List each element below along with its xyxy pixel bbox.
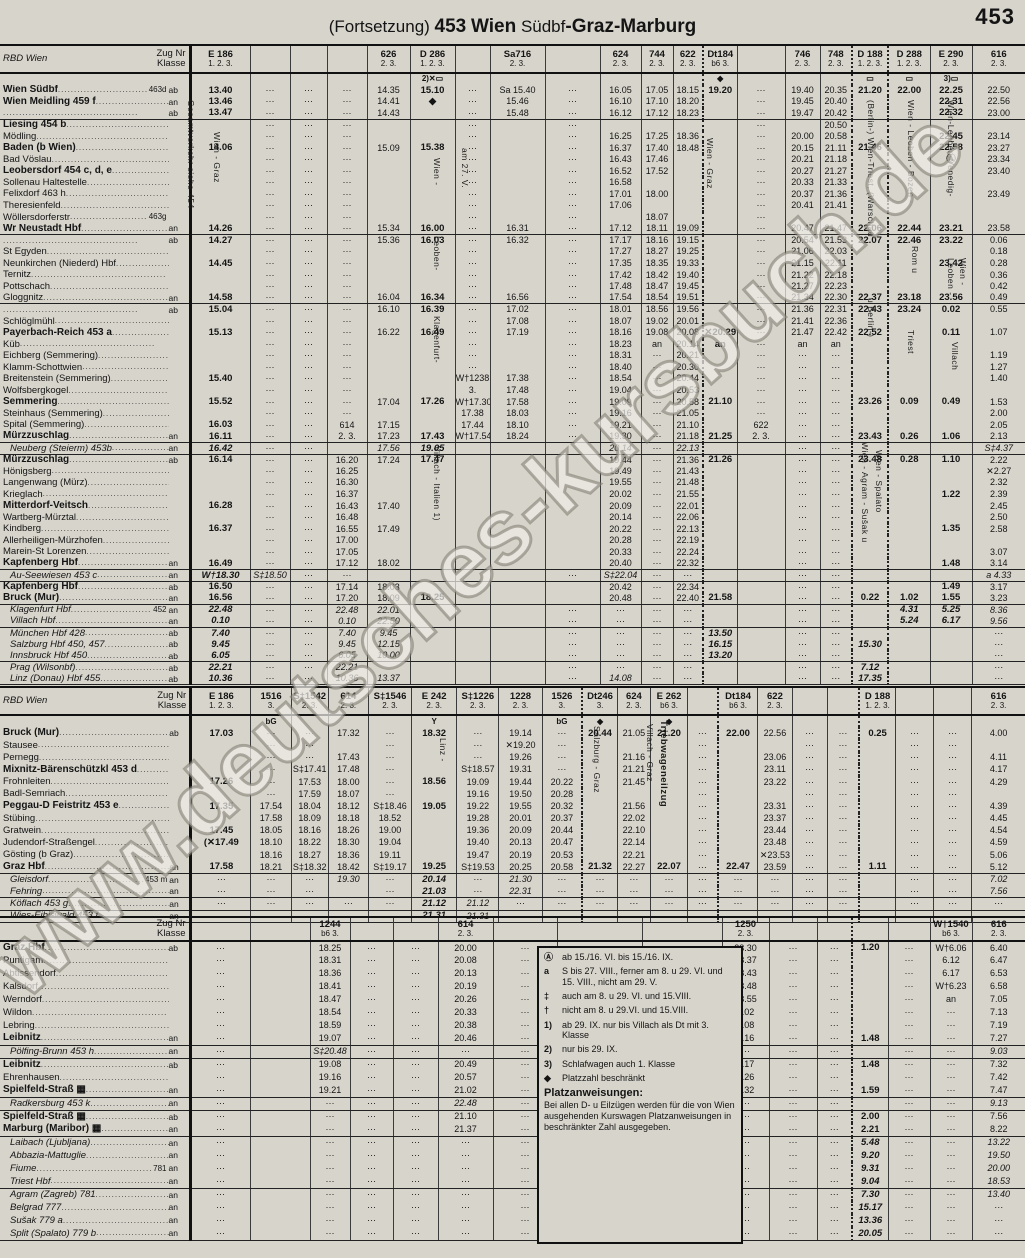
time-cell: ··· — [792, 837, 827, 849]
time-cell: ··· — [545, 431, 600, 443]
time-cell: ··· — [542, 739, 582, 751]
train-marker-icon: ▭ — [888, 73, 930, 85]
time-cell: ··· — [250, 212, 290, 224]
time-cell: ··· — [888, 1084, 930, 1097]
time-cell — [410, 627, 455, 639]
time-cell: 18.07 — [328, 788, 368, 800]
time-cell: ··· — [393, 1188, 438, 1201]
time-cell — [703, 108, 737, 120]
time-cell: ··· — [290, 258, 327, 270]
time-cell — [852, 581, 888, 593]
time-cell — [852, 954, 888, 967]
time-cell: ··· — [769, 980, 817, 993]
time-cell: 16.58 — [600, 177, 641, 189]
time-cell: ··· — [455, 350, 490, 362]
time-cell: ··· — [972, 639, 1025, 651]
footnote: ◆Platzzahl beschränkt — [544, 1073, 736, 1083]
time-cell: 2.32 — [972, 477, 1025, 489]
time-cell — [250, 1097, 310, 1110]
time-cell: ··· — [250, 258, 290, 270]
time-cell: 21.27 — [785, 281, 820, 293]
time-cell: ··· — [438, 1149, 493, 1162]
time-cell: 14.08 — [600, 673, 641, 685]
time-cell: ··· — [895, 739, 933, 751]
route-label: Wien - Leoben - Bozen - — [906, 100, 916, 262]
time-cell: S‡20.48 — [310, 1045, 350, 1058]
time-cell: ··· — [888, 1032, 930, 1045]
time-cell — [930, 546, 972, 558]
time-cell — [490, 246, 545, 258]
time-cell — [703, 362, 737, 374]
time-cell: 20.40 — [820, 96, 852, 108]
time-cell: 1.07 — [972, 327, 1025, 339]
time-cell — [367, 165, 410, 177]
time-cell — [820, 212, 852, 224]
time-cell: ··· — [617, 873, 650, 885]
time-cell: ··· — [368, 776, 411, 788]
time-cell: ··· — [930, 1123, 972, 1136]
time-cell — [930, 662, 972, 674]
time-cell: ··· — [820, 546, 852, 558]
marker-cell — [490, 73, 545, 85]
station-cell: Badl-Semriach — [0, 788, 191, 800]
time-cell: ··· — [827, 727, 859, 739]
station-row: Kapfenberg Hbfan16.49······17.1218.0220.… — [0, 558, 1025, 570]
time-cell: ··· — [250, 339, 290, 351]
station-cell: Leobersdorf 454 c, d, e — [0, 165, 190, 177]
time-cell: ··· — [190, 941, 250, 954]
time-cell: 13.40 — [972, 1188, 1025, 1201]
marker-cell — [641, 73, 673, 85]
time-cell: ··· — [888, 1045, 930, 1058]
time-cell: 2.00 — [852, 1110, 888, 1123]
train-marker-icon: ◆ — [650, 715, 687, 727]
time-cell: ··· — [327, 142, 367, 154]
time-cell: ··· — [499, 898, 542, 910]
train-column-empty — [190, 917, 250, 941]
time-cell: ··· — [688, 849, 718, 861]
time-cell: 13.22 — [972, 1136, 1025, 1149]
time-cell: ··· — [393, 1201, 438, 1214]
train-column-Dt184: Dt184b6 3. — [703, 45, 737, 73]
time-cell — [703, 235, 737, 247]
time-cell: ··· — [290, 327, 327, 339]
time-cell: ··· — [290, 673, 327, 685]
time-cell: ··· — [688, 788, 718, 800]
time-cell: 20.33 — [600, 546, 641, 558]
time-cell — [650, 764, 687, 776]
time-cell: ··· — [545, 627, 600, 639]
time-cell: ··· — [250, 223, 290, 235]
time-cell: ··· — [290, 662, 327, 674]
time-cell — [412, 788, 457, 800]
time-cell: 0.25 — [859, 727, 895, 739]
time-cell: 17.05 — [327, 546, 367, 558]
station-row: Fehringan············21.03···22.31······… — [0, 886, 1025, 898]
time-cell — [703, 489, 737, 501]
time-cell: ··· — [820, 581, 852, 593]
time-cell: ··· — [737, 200, 785, 212]
time-cell: ··· — [310, 1097, 350, 1110]
time-cell: S‡17.41 — [291, 764, 328, 776]
time-cell: 0.49 — [930, 396, 972, 408]
time-cell: ··· — [393, 1136, 438, 1149]
time-cell — [930, 466, 972, 478]
station-cell: Wildon — [0, 1006, 190, 1019]
time-cell: 19.08 — [641, 327, 673, 339]
time-cell: ··· — [250, 188, 290, 200]
route-label: Leoben - — [946, 258, 956, 316]
time-cell: ··· — [769, 1149, 817, 1162]
time-cell: ··· — [542, 727, 582, 739]
timetable-section-2: RBD WienZug NrKlasseE 1861. 2. 3.15163.S… — [0, 686, 1025, 923]
time-cell: 19.33 — [673, 258, 703, 270]
time-cell: ··· — [737, 408, 785, 420]
time-cell: 20.25 — [499, 861, 542, 873]
time-cell: ··· — [792, 727, 827, 739]
time-cell: ··· — [785, 454, 820, 466]
time-cell — [972, 119, 1025, 131]
station-cell: Wien Meidling 459 fan — [0, 96, 190, 108]
time-cell: ··· — [545, 616, 600, 628]
time-cell: 20.44 — [673, 373, 703, 385]
time-cell — [367, 477, 410, 489]
train-column-Dt246: Dt2463. — [582, 687, 617, 715]
time-cell: ··· — [827, 813, 859, 825]
time-cell: 22.48 — [327, 604, 367, 616]
time-cell: ··· — [641, 662, 673, 674]
time-cell — [455, 650, 490, 662]
time-cell: ··· — [972, 650, 1025, 662]
time-cell: ··· — [820, 593, 852, 605]
time-cell: ··· — [888, 980, 930, 993]
time-cell: ··· — [934, 886, 972, 898]
time-cell: ··· — [250, 246, 290, 258]
time-cell: ··· — [888, 1058, 930, 1071]
time-cell: 21.55 — [673, 489, 703, 501]
time-cell: 20.13 — [438, 967, 493, 980]
time-cell: 22.21 — [327, 662, 367, 674]
time-cell — [367, 119, 410, 131]
header-rbd: RBD WienZug NrKlasse — [0, 687, 191, 715]
footnote: Ⓐab 15./16. VI. bis 15./16. IX. — [544, 952, 736, 962]
station-row: Graz Hbfab···18.25······20.00·········23… — [0, 941, 1025, 954]
time-cell: ··· — [688, 837, 718, 849]
time-cell — [852, 385, 888, 397]
time-cell — [490, 165, 545, 177]
station-row: Frohnleiten17.26···17.5318.00···18.5619.… — [0, 776, 1025, 788]
time-cell: 23.59 — [758, 861, 792, 873]
time-cell — [490, 362, 545, 374]
footnote-symbol: ◆ — [544, 1073, 562, 1083]
time-cell — [888, 662, 930, 674]
time-cell: ··· — [327, 292, 367, 304]
time-cell — [191, 813, 251, 825]
time-cell: ··· — [820, 489, 852, 501]
station-cell: Spital (Semmering) — [0, 419, 190, 431]
time-cell: 22.36 — [820, 315, 852, 327]
time-cell — [250, 1123, 310, 1136]
station-cell: Split (Spalato) 779 ban — [0, 1227, 190, 1240]
station-row: Fiume781an······························… — [0, 1162, 1025, 1175]
time-cell: 23.18 — [888, 292, 930, 304]
time-cell — [703, 281, 737, 293]
time-cell: 21.30 — [499, 873, 542, 885]
time-cell: ··· — [930, 1071, 972, 1084]
time-cell: 0.28 — [888, 454, 930, 466]
time-cell — [367, 570, 410, 582]
time-cell: 17.45 — [191, 825, 251, 837]
time-cell: ··· — [191, 898, 251, 910]
time-cell — [888, 477, 930, 489]
time-cell — [888, 581, 930, 593]
footnote-text: ab 29. IX. nur bis Villach als Dt mit 3.… — [562, 1020, 736, 1041]
time-cell: ··· — [393, 993, 438, 1006]
time-cell: 17.17 — [600, 235, 641, 247]
train-column-624: 6242. 3. — [600, 45, 641, 73]
time-cell: 21.27 — [820, 165, 852, 177]
time-cell: ··· — [290, 477, 327, 489]
time-cell — [412, 837, 457, 849]
time-cell: ··· — [934, 764, 972, 776]
time-cell: ··· — [190, 1188, 250, 1201]
time-cell: ··· — [250, 650, 290, 662]
station-cell: Spielfeld-Straß ▦ab — [0, 1110, 190, 1123]
time-cell — [888, 489, 930, 501]
time-cell: ··· — [250, 639, 290, 651]
time-cell: ··· — [250, 373, 290, 385]
time-cell: ··· — [737, 350, 785, 362]
footnote-text: nicht am 8. u 29.VI. und 15.VIII. — [562, 1005, 688, 1015]
time-cell: ··· — [895, 788, 933, 800]
time-cell: ··· — [327, 85, 367, 97]
time-cell: ··· — [250, 142, 290, 154]
time-cell: ··· — [641, 512, 673, 524]
time-cell: 19.21 — [600, 419, 641, 431]
time-cell: ··· — [769, 1136, 817, 1149]
time-cell — [673, 212, 703, 224]
time-cell: 6.17 — [930, 967, 972, 980]
time-cell — [367, 489, 410, 501]
station-cell: Steinhaus (Semmering) — [0, 408, 190, 420]
time-cell — [490, 593, 545, 605]
time-cell: 18.16 — [291, 825, 328, 837]
train-column-empty — [493, 917, 557, 941]
time-cell: ··· — [895, 873, 933, 885]
time-cell: 15.10 — [410, 85, 455, 97]
time-cell — [852, 604, 888, 616]
time-cell: ··· — [617, 898, 650, 910]
time-cell: ··· — [737, 339, 785, 351]
station-row: Köflach 453 gan···············21.1221.12… — [0, 898, 1025, 910]
time-cell: 13.50 — [703, 627, 737, 639]
time-cell: ··· — [934, 739, 972, 751]
time-cell — [703, 673, 737, 685]
time-cell: ··· — [641, 558, 673, 570]
time-cell: 17.20 — [327, 593, 367, 605]
time-cell: ··· — [817, 967, 852, 980]
station-cell: Abtissendorf — [0, 967, 190, 980]
time-cell — [785, 212, 820, 224]
time-cell: ··· — [673, 662, 703, 674]
time-cell — [250, 993, 310, 1006]
time-cell: 23.00 — [972, 108, 1025, 120]
time-cell — [490, 466, 545, 478]
time-cell: 16.48 — [327, 512, 367, 524]
time-cell — [412, 825, 457, 837]
time-cell — [455, 616, 490, 628]
time-cell: ··· — [393, 1097, 438, 1110]
time-cell: ··· — [545, 142, 600, 154]
time-cell: 2. 3. — [327, 431, 367, 443]
time-cell: ··· — [310, 1123, 350, 1136]
station-cell: Mürzzuschlagan — [0, 431, 190, 443]
time-cell: ··· — [820, 477, 852, 489]
time-cell: 18.03 — [490, 408, 545, 420]
time-cell: ··· — [769, 967, 817, 980]
time-cell: ··· — [310, 1227, 350, 1240]
station-cell: Liesing 454 b — [0, 119, 190, 131]
time-cell: ··· — [327, 154, 367, 166]
time-cell — [410, 558, 455, 570]
time-cell: ··· — [895, 764, 933, 776]
time-cell: ··· — [817, 1032, 852, 1045]
time-cell: 20.37 — [542, 813, 582, 825]
time-cell — [718, 739, 758, 751]
time-cell — [490, 673, 545, 685]
time-cell: ··· — [250, 616, 290, 628]
station-row: Peggau-D Feistritz 453 e17.3517.5418.041… — [0, 800, 1025, 812]
time-cell: ··· — [895, 776, 933, 788]
time-cell: 17.19 — [490, 327, 545, 339]
time-cell: ··· — [827, 800, 859, 812]
time-cell — [490, 570, 545, 582]
time-cell: ··· — [290, 546, 327, 558]
time-cell: 22.47 — [718, 861, 758, 873]
time-cell — [250, 1149, 310, 1162]
time-cell — [490, 258, 545, 270]
station-row: Judendorf-Straßengel(✕17.4918.1018.2218.… — [0, 837, 1025, 849]
time-cell: 17.23 — [367, 431, 410, 443]
time-cell: ··· — [291, 898, 328, 910]
time-cell: ··· — [350, 1149, 393, 1162]
station-row: Marburg (Maribor) ▦an············21.37··… — [0, 1123, 1025, 1136]
time-cell — [412, 813, 457, 825]
time-cell: ··· — [792, 752, 827, 764]
time-cell: ··· — [290, 616, 327, 628]
time-cell: 2.50 — [972, 512, 1025, 524]
train-column-614: 6142. 3. — [438, 917, 493, 941]
time-cell: 22.13 — [673, 443, 703, 455]
time-cell: 1.59 — [852, 1084, 888, 1097]
station-cell: St Egyden — [0, 246, 190, 258]
time-cell: ··· — [190, 980, 250, 993]
time-cell: ··· — [250, 604, 290, 616]
time-cell: ··· — [250, 119, 290, 131]
time-cell: ··· — [457, 739, 499, 751]
station-row: Klagenfurt Hbf452an22.48······22.4822.01… — [0, 604, 1025, 616]
station-row: Prag (Wilsonbf)ab22.21······22.21·······… — [0, 662, 1025, 674]
time-cell: ··· — [438, 1227, 493, 1240]
time-cell — [490, 477, 545, 489]
station-cell: Kapfenberg Hbfab — [0, 581, 190, 593]
time-cell: ··· — [291, 873, 328, 885]
time-cell: ··· — [291, 739, 328, 751]
time-cell: ··· — [393, 954, 438, 967]
time-cell: ··· — [737, 315, 785, 327]
time-cell: 4.59 — [972, 837, 1025, 849]
time-cell: (✕17.49 — [191, 837, 251, 849]
footnote: †nicht am 8. u 29.VI. und 15.VIII. — [544, 1005, 736, 1015]
time-cell: 19.02 — [641, 315, 673, 327]
time-cell: ··· — [455, 212, 490, 224]
time-cell: ··· — [641, 604, 673, 616]
station-cell: Leibnitzab — [0, 1058, 190, 1071]
station-cell: Gösting (b Graz) — [0, 849, 191, 861]
time-cell: ··· — [542, 764, 582, 776]
time-cell: 1.35 — [930, 523, 972, 535]
time-cell: ··· — [888, 967, 930, 980]
time-cell: ··· — [393, 1214, 438, 1227]
time-cell: ··· — [737, 281, 785, 293]
station-cell: Ehrenhausen — [0, 1071, 190, 1084]
time-cell: ··· — [737, 304, 785, 316]
time-cell: ··· — [737, 177, 785, 189]
time-cell — [859, 764, 895, 776]
time-cell: ··· — [545, 96, 600, 108]
time-cell: ··· — [250, 96, 290, 108]
time-cell: 13.20 — [703, 650, 737, 662]
time-cell: 18.36 — [328, 849, 368, 861]
time-cell — [888, 627, 930, 639]
time-cell — [859, 837, 895, 849]
time-cell: 0.36 — [972, 269, 1025, 281]
time-cell: 0.28 — [972, 258, 1025, 270]
train-column-W†1540: W†1540b6 3. — [930, 917, 972, 941]
time-cell — [367, 546, 410, 558]
time-cell: 18.54 — [600, 373, 641, 385]
time-cell: ··· — [718, 898, 758, 910]
station-row: Spielfeld-Straß ▦an···19.21······21.02··… — [0, 1084, 1025, 1097]
time-cell: ··· — [650, 898, 687, 910]
time-cell: ··· — [785, 558, 820, 570]
station-row: Leibnitzan···19.07······20.46·········0.… — [0, 1032, 1025, 1045]
time-cell: 19.55 — [600, 477, 641, 489]
time-cell: 1.11 — [859, 861, 895, 873]
time-cell: ··· — [250, 443, 290, 455]
time-cell: 5.25 — [930, 604, 972, 616]
time-cell: ··· — [393, 1110, 438, 1123]
station-row: Mixnitz-Bärenschützkl 453 d···S‡17.4117.… — [0, 764, 1025, 776]
time-cell: 22.40 — [673, 593, 703, 605]
time-cell — [367, 535, 410, 547]
marker-cell — [457, 715, 499, 727]
time-cell: 16.15 — [703, 639, 737, 651]
time-cell: ··· — [817, 941, 852, 954]
time-cell: 18.25 — [410, 593, 455, 605]
time-cell: ··· — [290, 604, 327, 616]
time-cell: 16.37 — [190, 523, 250, 535]
time-cell: ··· — [290, 131, 327, 143]
time-cell: 22.50 — [367, 616, 410, 628]
time-cell — [852, 1045, 888, 1058]
time-cell — [412, 752, 457, 764]
time-cell: ··· — [785, 535, 820, 547]
station-row: Stübing17.5818.0918.1818.5219.2820.0120.… — [0, 813, 1025, 825]
time-cell: 2.00 — [972, 408, 1025, 420]
time-cell: 18.20 — [673, 96, 703, 108]
time-cell: ··· — [688, 800, 718, 812]
